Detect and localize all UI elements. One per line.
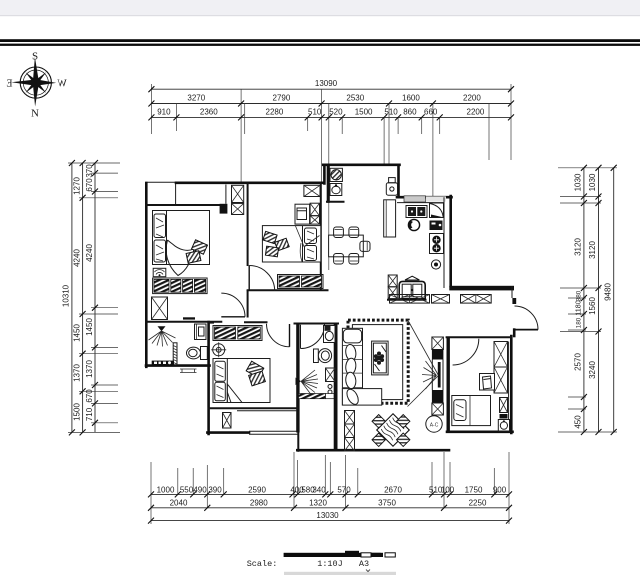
svg-text:1500: 1500: [355, 108, 373, 117]
svg-text:2200: 2200: [463, 94, 481, 103]
svg-text:670: 670: [85, 389, 94, 403]
svg-text:1370: 1370: [85, 360, 94, 378]
svg-text:W: W: [57, 79, 67, 90]
svg-text:1750: 1750: [465, 486, 483, 495]
svg-text:2280: 2280: [266, 108, 284, 117]
svg-text:100: 100: [441, 486, 455, 495]
svg-text:1560: 1560: [588, 297, 597, 315]
svg-text:490: 490: [193, 486, 207, 495]
svg-text:2590: 2590: [248, 486, 266, 495]
svg-text:3240: 3240: [588, 361, 597, 379]
svg-text:340: 340: [312, 486, 326, 495]
svg-text:1270: 1270: [73, 177, 82, 195]
svg-text:13090: 13090: [315, 79, 338, 88]
svg-text:1180: 1180: [574, 300, 583, 315]
svg-text:520: 520: [329, 108, 343, 117]
svg-text:900: 900: [493, 486, 507, 495]
svg-text:1030: 1030: [574, 173, 583, 191]
svg-text:9480: 9480: [603, 283, 612, 301]
svg-text:510: 510: [308, 108, 322, 117]
svg-text:1:10J: 1:10J: [317, 559, 343, 569]
svg-text:2570: 2570: [574, 353, 583, 371]
svg-text:1450: 1450: [73, 324, 82, 342]
svg-text:S: S: [32, 51, 38, 63]
svg-text:3120: 3120: [574, 238, 583, 256]
svg-text:2250: 2250: [469, 498, 487, 507]
svg-text:660: 660: [424, 108, 438, 117]
svg-text:3270: 3270: [187, 94, 205, 103]
svg-text:1370: 1370: [73, 364, 82, 382]
svg-text:4240: 4240: [85, 244, 94, 262]
svg-text:1000: 1000: [157, 486, 175, 495]
svg-text:510: 510: [384, 108, 398, 117]
svg-text:180: 180: [576, 317, 583, 328]
svg-text:2670: 2670: [384, 486, 402, 495]
svg-text:380: 380: [576, 290, 583, 301]
svg-text:570: 570: [337, 486, 351, 495]
svg-text:3120: 3120: [588, 241, 597, 259]
svg-text:N: N: [31, 108, 39, 120]
svg-text:1320: 1320: [309, 498, 327, 507]
svg-text:3750: 3750: [378, 498, 396, 507]
svg-text:670: 670: [85, 178, 94, 192]
svg-text:2980: 2980: [250, 498, 268, 507]
svg-text:2790: 2790: [273, 94, 291, 103]
svg-text:2200: 2200: [467, 108, 485, 117]
svg-text:390: 390: [208, 486, 222, 495]
svg-text:860: 860: [403, 108, 417, 117]
svg-text:910: 910: [157, 108, 171, 117]
svg-text:1450: 1450: [85, 318, 94, 336]
svg-text:2530: 2530: [346, 94, 364, 103]
svg-text:1030: 1030: [588, 173, 597, 191]
svg-text:2040: 2040: [170, 498, 188, 507]
svg-text:2360: 2360: [200, 108, 218, 117]
svg-text:1600: 1600: [402, 94, 420, 103]
svg-text:A-C: A-C: [430, 422, 439, 428]
svg-text:A3: A3: [359, 559, 369, 569]
svg-text:E: E: [6, 79, 12, 90]
svg-text:10310: 10310: [62, 284, 71, 307]
svg-text:450: 450: [574, 415, 583, 429]
svg-text:Scale:: Scale:: [247, 559, 278, 569]
svg-text:550: 550: [180, 486, 194, 495]
svg-text:13030: 13030: [316, 511, 339, 520]
svg-text:1500: 1500: [73, 403, 82, 421]
svg-text:710: 710: [85, 407, 94, 421]
svg-text:4240: 4240: [73, 249, 82, 267]
svg-text:370: 370: [85, 164, 94, 178]
